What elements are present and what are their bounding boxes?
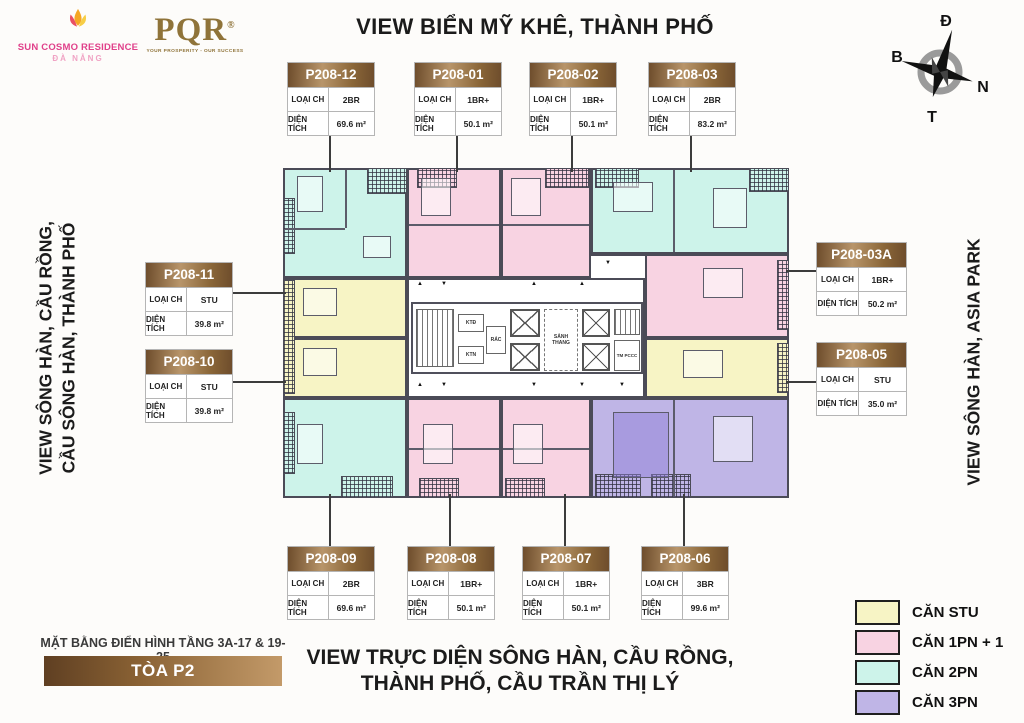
area-label: DIỆN TÍCH [817, 392, 859, 415]
compass-north-label: B [891, 49, 903, 66]
balcony-hatch [505, 478, 545, 498]
unit-card-P208-07: P208-07 LOẠI CH1BR+ DIỆN TÍCH50.1 m² [522, 546, 610, 620]
interior-wall [673, 400, 675, 496]
area-label: DIỆN TÍCH [146, 312, 187, 335]
balcony-hatch [545, 168, 589, 188]
connector-line [449, 494, 451, 546]
unit-type-row: LOẠI CH1BR+ [530, 87, 616, 111]
view-title-left-line2: CẦU SÔNG HÀN, THÀNH PHỐ [57, 221, 80, 475]
agency-logo: PQR® YOUR PROSPERITY - OUR SUCCESS [146, 14, 244, 54]
area-value: 50.1 m² [571, 112, 616, 135]
unit-area-row: DIỆN TÍCH50.1 m² [415, 111, 501, 135]
core-room-trash: RÁC [486, 326, 506, 354]
type-label: LOẠI CH [288, 572, 329, 595]
area-value: 99.6 m² [683, 596, 728, 619]
compass-icon: Đ B N T [888, 12, 992, 124]
unit-area-row: DIỆN TÍCH39.8 m² [146, 311, 232, 335]
balcony-hatch [777, 343, 789, 393]
stairwell [614, 309, 640, 335]
corridor-arrow-icon: ▼ [441, 382, 447, 388]
unit-id: P208-02 [530, 63, 616, 87]
plan-unit-P208-11 [283, 278, 407, 338]
area-value: 39.8 m² [187, 312, 232, 335]
legend-label: CĂN 3PN [912, 694, 978, 711]
legend-label: CĂN 1PN + 1 [912, 634, 1003, 651]
area-label: DIỆN TÍCH [523, 596, 564, 619]
furniture [683, 350, 723, 378]
unit-area-row: DIỆN TÍCH69.6 m² [288, 111, 374, 135]
type-value: 2BR [690, 88, 735, 111]
unit-card-P208-06: P208-06 LOẠI CH3BR DIỆN TÍCH99.6 m² [641, 546, 729, 620]
area-value: 83.2 m² [690, 112, 735, 135]
unit-area-row: DIỆN TÍCH50.1 m² [408, 595, 494, 619]
connector-line [329, 134, 331, 172]
elevator [510, 309, 540, 337]
legend: CĂN STU CĂN 1PN + 1 CĂN 2PN CĂN 3PN [855, 600, 1003, 720]
unit-area-row: DIỆN TÍCH99.6 m² [642, 595, 728, 619]
balcony-hatch [749, 168, 789, 192]
area-label: DIỆN TÍCH [817, 292, 859, 315]
core-room-ktn: KTN [458, 346, 484, 364]
brand-logo: SUN COSMO RESIDENCE ĐÀ NẴNG [16, 8, 140, 63]
type-value: STU [187, 288, 232, 311]
type-value: 1BR+ [859, 268, 906, 291]
corridor-arrow-icon: ▼ [605, 260, 611, 266]
connector-line [786, 270, 817, 272]
compass-south-label: N [977, 79, 989, 96]
type-value: 1BR+ [571, 88, 616, 111]
area-value: 50.1 m² [564, 596, 609, 619]
unit-id: P208-11 [146, 263, 232, 287]
type-value: 1BR+ [564, 572, 609, 595]
legend-label: CĂN STU [912, 604, 979, 621]
unit-id: P208-08 [408, 547, 494, 571]
unit-id: P208-03 [649, 63, 735, 87]
elevator [582, 343, 610, 371]
unit-type-row: LOẠI CH3BR [642, 571, 728, 595]
unit-id: P208-07 [523, 547, 609, 571]
unit-id: P208-03A [817, 243, 906, 267]
unit-id: P208-05 [817, 343, 906, 367]
legend-swatch-2pn [855, 660, 900, 685]
core-room-fire: TM PCCC [614, 340, 640, 371]
unit-id: P208-12 [288, 63, 374, 87]
unit-type-row: LOẠI CH2BR [288, 87, 374, 111]
furniture [303, 348, 337, 376]
compass-east-label: Đ [940, 13, 952, 30]
connector-line [456, 134, 458, 172]
balcony-hatch [367, 168, 407, 194]
connector-line [683, 494, 685, 546]
unit-area-row: DIỆN TÍCH69.6 m² [288, 595, 374, 619]
connector-line [231, 292, 286, 294]
furniture [713, 416, 753, 462]
area-label: DIỆN TÍCH [288, 596, 329, 619]
corridor-arrow-icon: ▲ [531, 281, 537, 287]
area-label: DIỆN TÍCH [530, 112, 571, 135]
unit-card-P208-03A: P208-03A LOẠI CH1BR+ DIỆN TÍCH50.2 m² [816, 242, 907, 316]
area-value: 39.8 m² [187, 399, 232, 422]
furniture [613, 412, 669, 478]
area-value: 50.1 m² [449, 596, 494, 619]
type-label: LOẠI CH [146, 375, 187, 398]
type-value: 2BR [329, 572, 374, 595]
type-value: 2BR [329, 88, 374, 111]
type-label: LOẠI CH [408, 572, 449, 595]
elevator [582, 309, 610, 337]
unit-card-P208-10: P208-10 LOẠI CHSTU DIỆN TÍCH39.8 m² [145, 349, 233, 423]
furniture [713, 188, 747, 228]
unit-area-row: DIỆN TÍCH83.2 m² [649, 111, 735, 135]
connector-line [571, 134, 573, 172]
type-value: 1BR+ [456, 88, 501, 111]
area-label: DIỆN TÍCH [146, 399, 187, 422]
furniture [513, 424, 543, 464]
unit-card-P208-03: P208-03 LOẠI CH2BR DIỆN TÍCH83.2 m² [648, 62, 736, 136]
unit-type-row: LOẠI CHSTU [817, 367, 906, 391]
interior-wall [285, 228, 345, 230]
area-value: 35.0 m² [859, 392, 906, 415]
area-label: DIỆN TÍCH [642, 596, 683, 619]
unit-card-P208-09: P208-09 LOẠI CH2BR DIỆN TÍCH69.6 m² [287, 546, 375, 620]
type-value: 3BR [683, 572, 728, 595]
unit-type-row: LOẠI CH1BR+ [523, 571, 609, 595]
core-room-ktd: KTĐ [458, 314, 484, 332]
furniture [613, 182, 653, 212]
unit-card-P208-05: P208-05 LOẠI CHSTU DIỆN TÍCH35.0 m² [816, 342, 907, 416]
connector-line [564, 494, 566, 546]
interior-wall [345, 170, 347, 228]
type-label: LOẠI CH [530, 88, 571, 111]
compass-rose: Đ B N T [888, 12, 992, 124]
compass-west-label: T [927, 109, 937, 124]
area-label: DIỆN TÍCH [408, 596, 449, 619]
type-label: LOẠI CH [642, 572, 683, 595]
unit-area-row: DIỆN TÍCH50.2 m² [817, 291, 906, 315]
view-title-left: VIEW SÔNG HÀN, CẦU RỒNG, CẦU SÔNG HÀN, T… [34, 221, 80, 475]
interior-wall [673, 170, 675, 252]
unit-area-row: DIỆN TÍCH35.0 m² [817, 391, 906, 415]
area-label: DIỆN TÍCH [288, 112, 329, 135]
furniture [363, 236, 391, 258]
unit-id: P208-10 [146, 350, 232, 374]
unit-card-P208-01: P208-01 LOẠI CH1BR+ DIỆN TÍCH50.1 m² [414, 62, 502, 136]
unit-card-P208-12: P208-12 LOẠI CH2BR DIỆN TÍCH69.6 m² [287, 62, 375, 136]
brand-name: SUN COSMO RESIDENCE [16, 42, 140, 53]
view-title-left-line1: VIEW SÔNG HÀN, CẦU RỒNG, [34, 221, 57, 475]
type-label: LOẠI CH [288, 88, 329, 111]
legend-row: CĂN 2PN [855, 660, 1003, 685]
corridor-arrow-icon: ▼ [619, 382, 625, 388]
unit-id: P208-06 [642, 547, 728, 571]
unit-id: P208-01 [415, 63, 501, 87]
unit-type-row: LOẠI CH2BR [288, 571, 374, 595]
balcony-hatch [341, 476, 393, 498]
unit-type-row: LOẠI CH1BR+ [817, 267, 906, 291]
floor-plan: KTĐ KTN RÁC SẢNH THANG TM PCCC ▲ ▼ ▲ ▲ ▼… [283, 168, 789, 498]
furniture [421, 178, 451, 216]
unit-type-row: LOẠI CHSTU [146, 287, 232, 311]
corridor-arrow-icon: ▲ [417, 382, 423, 388]
furniture [297, 176, 323, 212]
type-label: LOẠI CH [817, 268, 859, 291]
connector-line [690, 134, 692, 172]
type-value: STU [859, 368, 906, 391]
unit-area-row: DIỆN TÍCH50.1 m² [523, 595, 609, 619]
furniture [303, 288, 337, 316]
stairwell [416, 309, 454, 367]
furniture [511, 178, 541, 216]
unit-card-P208-08: P208-08 LOẠI CH1BR+ DIỆN TÍCH50.1 m² [407, 546, 495, 620]
area-value: 69.6 m² [329, 112, 374, 135]
type-label: LOẠI CH [817, 368, 859, 391]
type-value: 1BR+ [449, 572, 494, 595]
area-value: 50.1 m² [456, 112, 501, 135]
unit-area-row: DIỆN TÍCH50.1 m² [530, 111, 616, 135]
furniture [423, 424, 453, 464]
lotus-flame-icon [63, 8, 93, 36]
unit-type-row: LOẠI CHSTU [146, 374, 232, 398]
interior-wall [409, 224, 499, 226]
agency-tagline: YOUR PROSPERITY - OUR SUCCESS [146, 49, 244, 54]
poster-canvas: { "brand": {"name": "SUN COSMO RESIDENCE… [0, 0, 1024, 723]
connector-line [329, 494, 331, 546]
agency-name: PQR® [146, 14, 244, 47]
legend-label: CĂN 2PN [912, 664, 978, 681]
unit-card-P208-11: P208-11 LOẠI CHSTU DIỆN TÍCH39.8 m² [145, 262, 233, 336]
furniture [703, 268, 743, 298]
legend-row: CĂN 1PN + 1 [855, 630, 1003, 655]
brand-city: ĐÀ NẴNG [16, 54, 140, 63]
elevator-lobby: SẢNH THANG [544, 309, 578, 371]
unit-id: P208-09 [288, 547, 374, 571]
unit-type-row: LOẠI CH1BR+ [408, 571, 494, 595]
tower-name-bar: TÒA P2 [44, 656, 282, 686]
corridor-arrow-icon: ▼ [441, 281, 447, 287]
building-core: KTĐ KTN RÁC SẢNH THANG TM PCCC [411, 302, 643, 374]
view-title-right: VIEW SÔNG HÀN, ASIA PARK [963, 238, 986, 485]
area-label: DIỆN TÍCH [649, 112, 690, 135]
balcony-hatch [419, 478, 459, 498]
legend-swatch-3pn [855, 690, 900, 715]
type-value: STU [187, 375, 232, 398]
legend-swatch-stu [855, 600, 900, 625]
view-title-bottom-line1: VIEW TRỰC DIỆN SÔNG HÀN, CẦU RỒNG, [295, 645, 745, 671]
balcony-hatch [283, 198, 295, 254]
view-title-bottom: VIEW TRỰC DIỆN SÔNG HÀN, CẦU RỒNG, THÀNH… [295, 645, 745, 698]
corridor-arrow-icon: ▼ [531, 382, 537, 388]
furniture [297, 424, 323, 464]
unit-type-row: LOẠI CH1BR+ [415, 87, 501, 111]
corridor-arrow-icon: ▲ [579, 281, 585, 287]
balcony-hatch [283, 412, 295, 474]
interior-wall [503, 224, 589, 226]
legend-row: CĂN STU [855, 600, 1003, 625]
legend-row: CĂN 3PN [855, 690, 1003, 715]
legend-swatch-1pn [855, 630, 900, 655]
view-title-bottom-line2: THÀNH PHỐ, CẦU TRẦN THỊ LÝ [295, 671, 745, 697]
type-label: LOẠI CH [146, 288, 187, 311]
unit-type-row: LOẠI CH2BR [649, 87, 735, 111]
view-title-top: VIEW BIỂN MỸ KHÊ, THÀNH PHỐ [320, 14, 750, 40]
registered-mark: ® [227, 20, 235, 31]
connector-line [786, 381, 817, 383]
type-label: LOẠI CH [649, 88, 690, 111]
corridor-bend [589, 254, 647, 280]
type-label: LOẠI CH [523, 572, 564, 595]
unit-card-P208-02: P208-02 LOẠI CH1BR+ DIỆN TÍCH50.1 m² [529, 62, 617, 136]
plan-unit-P208-10 [283, 338, 407, 398]
corridor-arrow-icon: ▼ [579, 382, 585, 388]
area-label: DIỆN TÍCH [415, 112, 456, 135]
corridor-arrow-icon: ▲ [417, 281, 423, 287]
unit-area-row: DIỆN TÍCH39.8 m² [146, 398, 232, 422]
type-label: LOẠI CH [415, 88, 456, 111]
area-value: 69.6 m² [329, 596, 374, 619]
balcony-hatch [283, 280, 295, 394]
connector-line [231, 381, 286, 383]
area-value: 50.2 m² [859, 292, 906, 315]
elevator [510, 343, 540, 371]
